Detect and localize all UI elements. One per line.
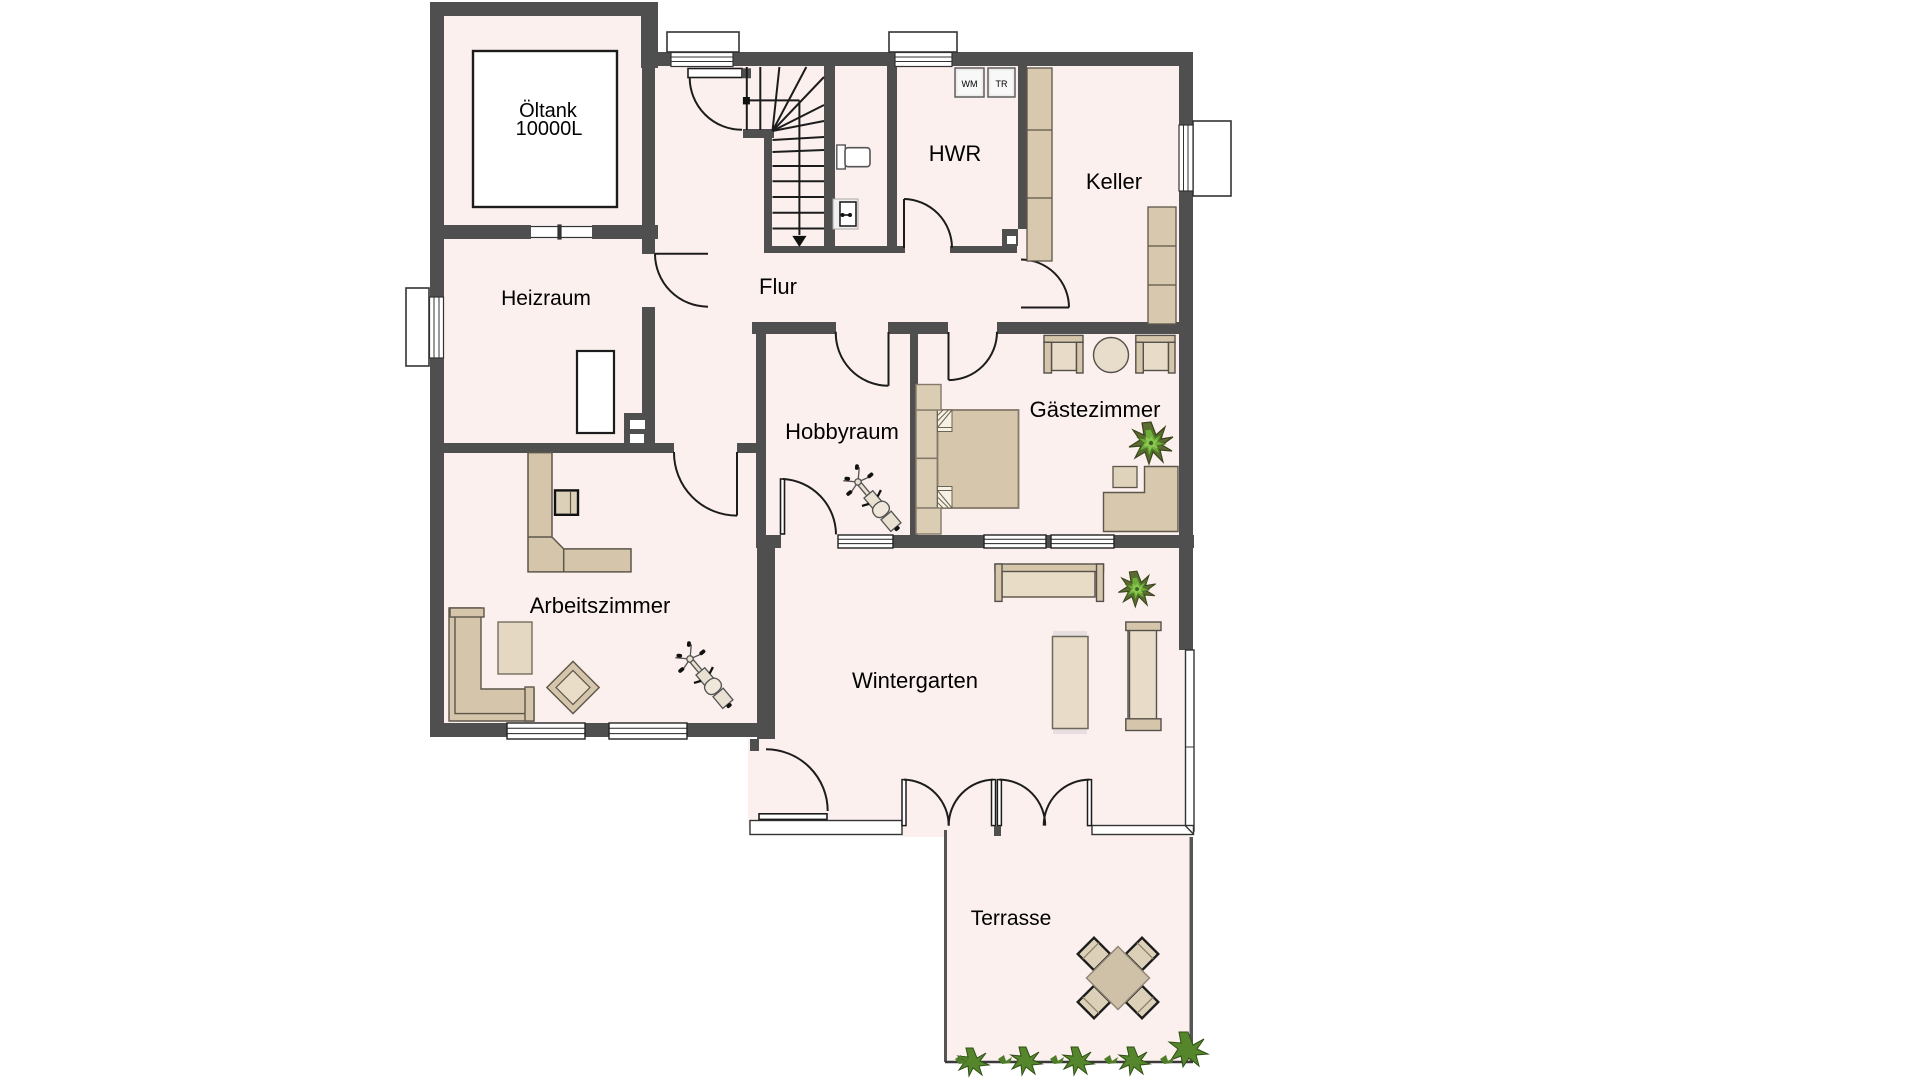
svg-text:Terrasse: Terrasse [971,907,1052,930]
svg-text:HWR: HWR [929,141,982,166]
svg-text:Flur: Flur [759,274,797,299]
svg-text:Arbeitszimmer: Arbeitszimmer [530,593,671,618]
svg-text:Wintergarten: Wintergarten [852,668,978,693]
svg-text:Hobbyraum: Hobbyraum [785,419,899,444]
svg-text:TR: TR [996,79,1008,89]
svg-text:10000L: 10000L [516,118,583,140]
svg-text:Keller: Keller [1086,169,1142,194]
svg-text:Gästezimmer: Gästezimmer [1030,397,1161,422]
svg-text:WM: WM [962,79,978,89]
svg-text:Heizraum: Heizraum [501,287,591,310]
